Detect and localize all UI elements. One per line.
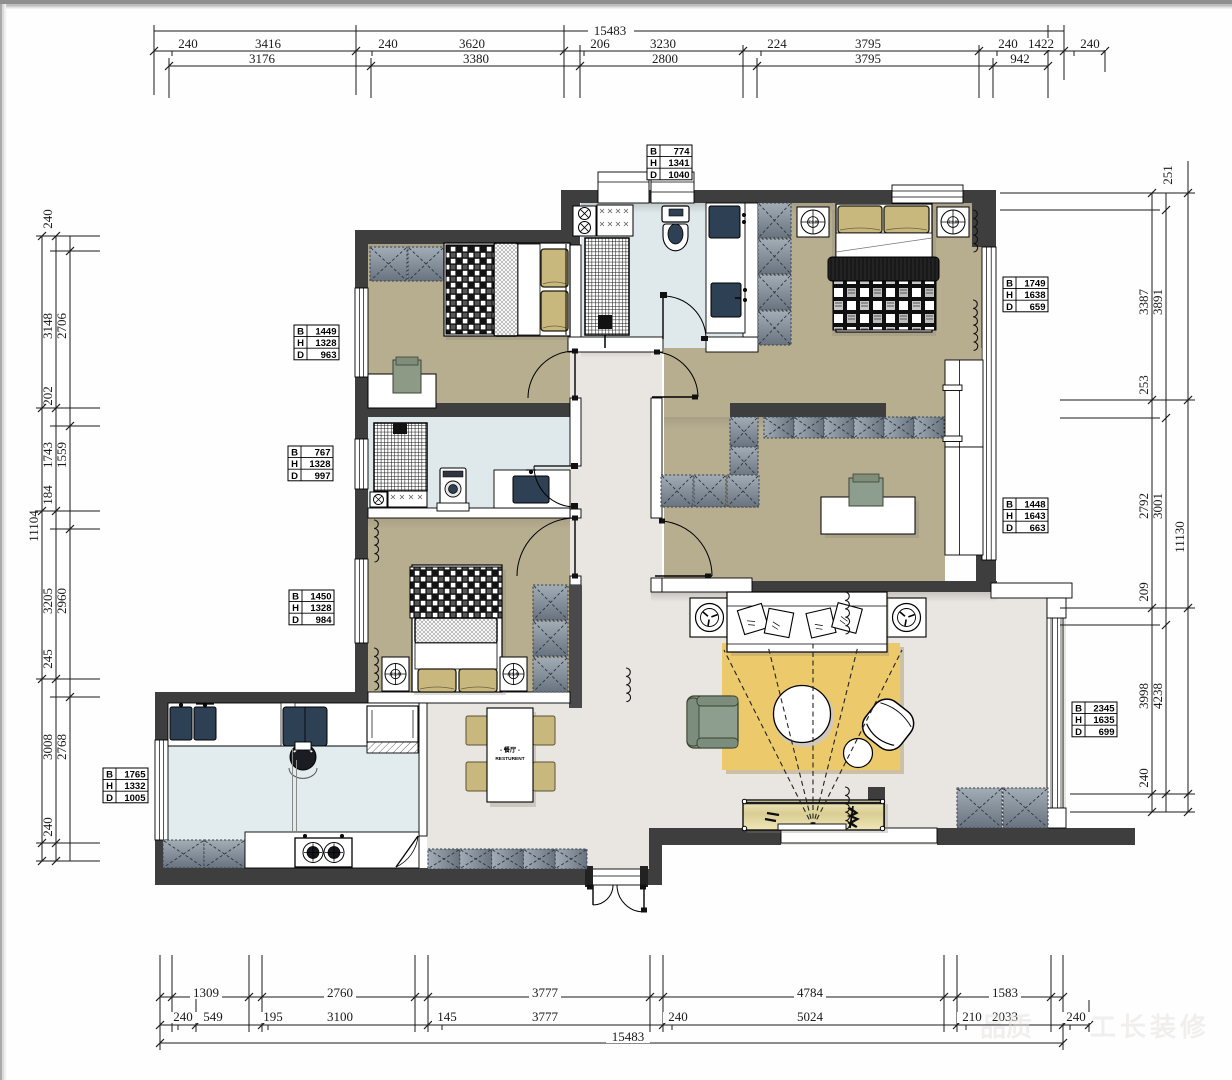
svg-text:240: 240 xyxy=(173,1009,193,1024)
svg-text:H: H xyxy=(106,781,113,792)
svg-text:1040: 1040 xyxy=(668,170,689,181)
svg-text:1743: 1743 xyxy=(40,442,55,468)
svg-text:240: 240 xyxy=(178,36,198,51)
svg-text:240: 240 xyxy=(1066,1009,1086,1024)
svg-text:B: B xyxy=(291,448,298,459)
svg-text:D: D xyxy=(650,170,657,181)
svg-text:942: 942 xyxy=(1010,51,1030,66)
svg-text:RESTURENT: RESTURENT xyxy=(495,756,524,762)
svg-text:195: 195 xyxy=(263,1009,283,1024)
svg-text:H: H xyxy=(650,158,657,169)
svg-text:- 餐厅 -: - 餐厅 - xyxy=(500,746,520,754)
svg-text:H: H xyxy=(297,338,304,349)
svg-text:963: 963 xyxy=(321,350,337,361)
svg-text:工长装修: 工长装修 xyxy=(1090,1012,1210,1042)
svg-text:11104: 11104 xyxy=(26,510,41,542)
svg-text:3891: 3891 xyxy=(1150,289,1165,315)
svg-text:床头柜: 床头柜 xyxy=(508,671,520,677)
svg-text:B: B xyxy=(650,147,657,158)
svg-text:2960: 2960 xyxy=(54,588,69,614)
svg-text:H: H xyxy=(1075,715,1082,726)
svg-text:3795: 3795 xyxy=(855,51,881,66)
svg-text:D: D xyxy=(297,350,304,361)
svg-text:4238: 4238 xyxy=(1150,683,1165,709)
svg-text:240: 240 xyxy=(40,209,55,229)
svg-text:210: 210 xyxy=(962,1009,982,1024)
svg-text:D: D xyxy=(1075,727,1082,738)
svg-text:184: 184 xyxy=(40,485,55,505)
svg-text:H: H xyxy=(291,459,298,470)
svg-text:4784: 4784 xyxy=(797,985,824,1000)
svg-text:品质: 品质 xyxy=(980,1012,1032,1042)
svg-text:5024: 5024 xyxy=(797,1009,824,1024)
svg-text:H: H xyxy=(1006,290,1013,301)
svg-text:11130: 11130 xyxy=(1172,521,1187,553)
svg-text:1765: 1765 xyxy=(124,770,146,781)
svg-text:1328: 1328 xyxy=(309,459,330,470)
svg-text:3008: 3008 xyxy=(40,734,55,760)
svg-text:2706: 2706 xyxy=(54,313,69,340)
svg-text:3001: 3001 xyxy=(1150,493,1165,519)
svg-text:1559: 1559 xyxy=(54,442,69,468)
svg-text:1749: 1749 xyxy=(1024,279,1045,290)
svg-text:2792: 2792 xyxy=(1136,493,1151,519)
svg-text:D: D xyxy=(1006,302,1013,313)
svg-text:H: H xyxy=(1006,511,1013,522)
svg-text:245: 245 xyxy=(40,649,55,669)
svg-text:3777: 3777 xyxy=(532,1009,559,1024)
svg-text:3176: 3176 xyxy=(249,51,276,66)
svg-text:209: 209 xyxy=(1136,582,1151,602)
svg-text:3387: 3387 xyxy=(1136,289,1151,316)
svg-text:1422: 1422 xyxy=(1028,36,1054,51)
svg-text:767: 767 xyxy=(315,448,331,459)
svg-text:1635: 1635 xyxy=(1093,715,1115,726)
svg-text:774: 774 xyxy=(674,147,691,158)
svg-text:3795: 3795 xyxy=(855,36,881,51)
svg-text:D: D xyxy=(1006,523,1013,534)
svg-text:3777: 3777 xyxy=(532,985,559,1000)
svg-text:202: 202 xyxy=(40,386,55,406)
svg-text:1309: 1309 xyxy=(193,985,219,1000)
svg-text:B: B xyxy=(106,770,113,781)
svg-text:1341: 1341 xyxy=(668,158,690,169)
svg-text:224: 224 xyxy=(767,36,787,51)
svg-text:240: 240 xyxy=(40,817,55,837)
svg-text:1638: 1638 xyxy=(1024,290,1045,301)
svg-text:663: 663 xyxy=(1030,523,1046,534)
svg-text:3205: 3205 xyxy=(40,588,55,614)
svg-text:B: B xyxy=(1006,279,1013,290)
svg-text:床头柜: 床头柜 xyxy=(807,219,819,225)
svg-text:1332: 1332 xyxy=(124,781,145,792)
svg-text:240: 240 xyxy=(1136,768,1151,788)
svg-text:2760: 2760 xyxy=(327,985,353,1000)
svg-text:240: 240 xyxy=(378,36,398,51)
svg-text:D: D xyxy=(291,471,298,482)
svg-text:1005: 1005 xyxy=(124,793,146,804)
svg-text:床头柜: 床头柜 xyxy=(390,671,402,677)
svg-text:3620: 3620 xyxy=(459,36,485,51)
svg-text:D: D xyxy=(106,793,113,804)
svg-text:145: 145 xyxy=(437,1009,457,1024)
svg-text:15483: 15483 xyxy=(612,1029,645,1044)
svg-text:1328: 1328 xyxy=(315,338,336,349)
svg-text:2768: 2768 xyxy=(54,734,69,760)
svg-text:床头柜: 床头柜 xyxy=(947,219,959,225)
svg-text:251: 251 xyxy=(1160,165,1175,185)
svg-text:1328: 1328 xyxy=(310,603,331,614)
svg-text:1450: 1450 xyxy=(310,592,331,603)
svg-text:2800: 2800 xyxy=(652,51,678,66)
svg-text:B: B xyxy=(292,592,299,603)
svg-text:B: B xyxy=(1006,500,1013,511)
svg-text:549: 549 xyxy=(203,1009,223,1024)
svg-text:206: 206 xyxy=(590,36,610,51)
svg-text:253: 253 xyxy=(1136,375,1151,395)
svg-text:240: 240 xyxy=(668,1009,688,1024)
svg-text:1583: 1583 xyxy=(992,985,1018,1000)
svg-text:1448: 1448 xyxy=(1024,500,1045,511)
svg-text:3416: 3416 xyxy=(255,36,282,51)
svg-text:240: 240 xyxy=(998,36,1018,51)
svg-text:3380: 3380 xyxy=(463,51,489,66)
svg-text:H: H xyxy=(292,603,299,614)
svg-text:D: D xyxy=(292,615,299,626)
svg-text:699: 699 xyxy=(1099,727,1115,738)
svg-text:B: B xyxy=(1075,704,1082,715)
svg-text:1449: 1449 xyxy=(315,327,336,338)
svg-text:3998: 3998 xyxy=(1136,683,1151,709)
svg-text:2345: 2345 xyxy=(1093,704,1115,715)
svg-text:3148: 3148 xyxy=(40,313,55,339)
svg-text:1643: 1643 xyxy=(1024,511,1045,522)
svg-text:3100: 3100 xyxy=(327,1009,353,1024)
svg-text:997: 997 xyxy=(315,471,331,482)
svg-text:3230: 3230 xyxy=(650,36,676,51)
svg-text:659: 659 xyxy=(1030,302,1046,313)
svg-text:984: 984 xyxy=(316,615,333,626)
svg-text:B: B xyxy=(297,327,304,338)
svg-text:240: 240 xyxy=(1080,36,1100,51)
